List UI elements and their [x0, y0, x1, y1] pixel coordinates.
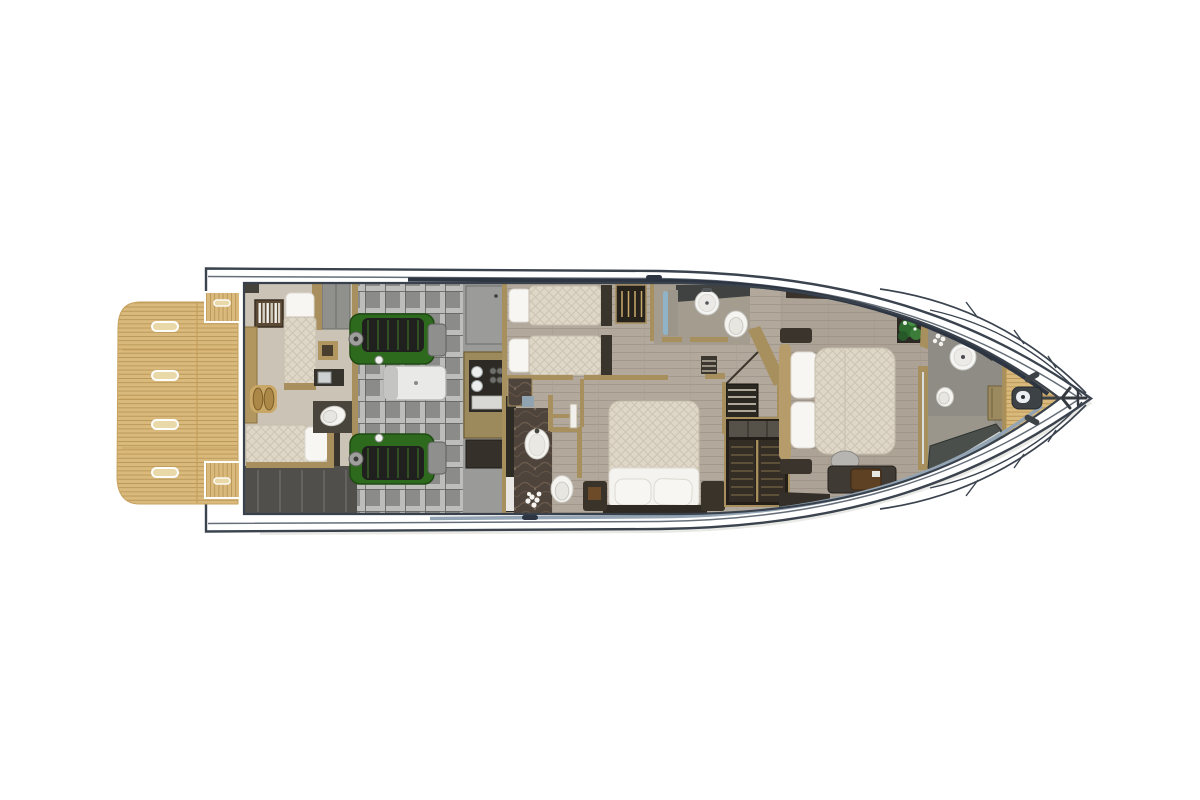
galley-sink — [472, 381, 483, 392]
step-handle-top — [214, 300, 230, 306]
step-handle-bottom — [214, 478, 230, 484]
bench-tray — [588, 487, 601, 500]
vip-bath-door — [570, 404, 577, 428]
guest-bath-wall — [662, 337, 682, 342]
swim-platform — [117, 292, 240, 504]
vip-headboard — [603, 505, 707, 514]
engine-starboard — [349, 434, 446, 484]
tank-panel — [466, 286, 504, 344]
twin-bed2-mattress — [529, 336, 601, 375]
access-hatch — [375, 356, 383, 364]
twin-bed2-pillow — [509, 339, 531, 372]
hatch-handle — [152, 468, 178, 477]
guest-faucet — [702, 288, 712, 292]
gearbox — [428, 324, 446, 356]
crew-bed-mattress — [284, 317, 316, 385]
master-nightstand — [780, 459, 812, 474]
master-headboard — [779, 344, 791, 460]
bath-mat — [522, 396, 534, 407]
crew-wall-aft — [246, 462, 334, 468]
master-nightstand — [780, 328, 812, 343]
vip-bench — [701, 481, 725, 511]
midship-cleat-bottom — [522, 515, 538, 520]
yacht-floorplan-rendering: Motor yacht lower deck floor plan — top-… — [0, 0, 1200, 800]
vip-pillow — [654, 478, 693, 505]
hatch-handle — [152, 420, 178, 429]
gearbox — [428, 442, 446, 474]
vip-bath-wall — [548, 395, 553, 431]
crew-stool — [253, 388, 263, 410]
galley-sink — [472, 367, 483, 378]
galley-storage — [466, 440, 506, 468]
crew-bed2-mattress — [246, 425, 308, 463]
engine-port — [349, 314, 446, 364]
crew-sink — [318, 372, 331, 383]
vip-pillow — [615, 479, 651, 505]
hatch-handle — [152, 322, 178, 331]
yacht-floorplan-page: Motor yacht lower deck floor plan — top-… — [0, 0, 1200, 800]
twin-bed1-mattress — [529, 286, 601, 325]
crew-stool — [264, 388, 274, 410]
hatch-handle — [152, 371, 178, 380]
midship-cleat-top — [646, 275, 662, 280]
crew-bed-footboard — [284, 383, 316, 390]
access-hatch — [375, 434, 383, 442]
guest-bath-wall — [690, 337, 728, 342]
guest-shower-floor — [668, 290, 678, 336]
twin-bed1-footboard — [601, 285, 612, 326]
transom-step-pad-top — [205, 292, 240, 322]
twin-cabin-wall — [650, 283, 654, 341]
master-pillow — [791, 402, 817, 448]
twin-bed2-footboard — [601, 335, 612, 376]
bow-cabinet — [988, 386, 1004, 420]
crew-bed-pillow — [286, 293, 314, 320]
corridor-wall — [584, 375, 668, 380]
vip-bath-wall — [577, 430, 582, 478]
master-pillow — [791, 352, 817, 398]
wardrobe-shelves — [729, 421, 785, 437]
guest-shower-glass — [663, 291, 668, 335]
master-bed-mattress — [815, 348, 895, 454]
corridor-wall — [580, 379, 584, 427]
twin-bed1-pillow — [509, 289, 531, 322]
guest-bathroom — [654, 283, 750, 345]
